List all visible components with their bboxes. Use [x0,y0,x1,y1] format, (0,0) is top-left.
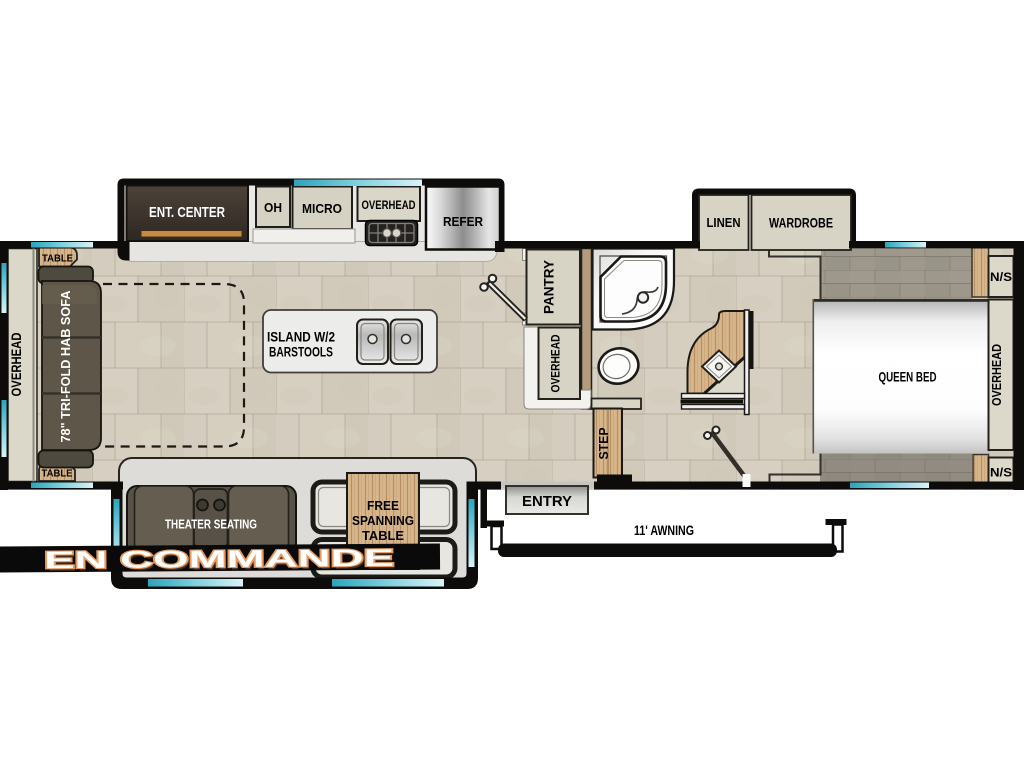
svg-text:ENT. CENTER: ENT. CENTER [149,205,225,221]
svg-text:N/S: N/S [990,272,1012,284]
svg-text:WARDROBE: WARDROBE [769,216,833,231]
svg-text:TABLE: TABLE [42,468,73,480]
svg-text:OH: OH [264,201,282,215]
svg-text:OVERHEAD: OVERHEAD [9,332,24,396]
svg-text:FREE: FREE [367,499,399,513]
svg-text:OVERHEAD: OVERHEAD [989,344,1004,406]
svg-text:LINEN: LINEN [707,216,741,230]
svg-text:PANTRY: PANTRY [542,260,557,314]
svg-text:ENTRY: ENTRY [522,493,572,510]
svg-text:ISLAND W/2: ISLAND W/2 [267,330,335,345]
svg-text:11' AWNING: 11' AWNING [634,523,694,538]
svg-text:78" TRI-FOLD HAB SOFA: 78" TRI-FOLD HAB SOFA [59,291,73,443]
svg-text:SPANNING: SPANNING [352,514,414,528]
svg-text:OVERHEAD: OVERHEAD [362,200,416,212]
svg-text:TABLE: TABLE [42,253,73,265]
svg-text:BARSTOOLS: BARSTOOLS [269,345,333,360]
svg-text:MICRO: MICRO [302,201,342,216]
svg-text:EN COMMANDE: EN COMMANDE [44,545,394,574]
svg-text:TABLE: TABLE [362,529,404,543]
svg-text:THEATER SEATING: THEATER SEATING [165,518,257,532]
svg-text:REFER: REFER [443,214,484,229]
svg-text:OVERHEAD: OVERHEAD [549,334,563,392]
svg-text:STEP: STEP [596,427,611,459]
svg-text:QUEEN BED: QUEEN BED [879,370,937,385]
svg-text:N/S: N/S [990,468,1012,480]
